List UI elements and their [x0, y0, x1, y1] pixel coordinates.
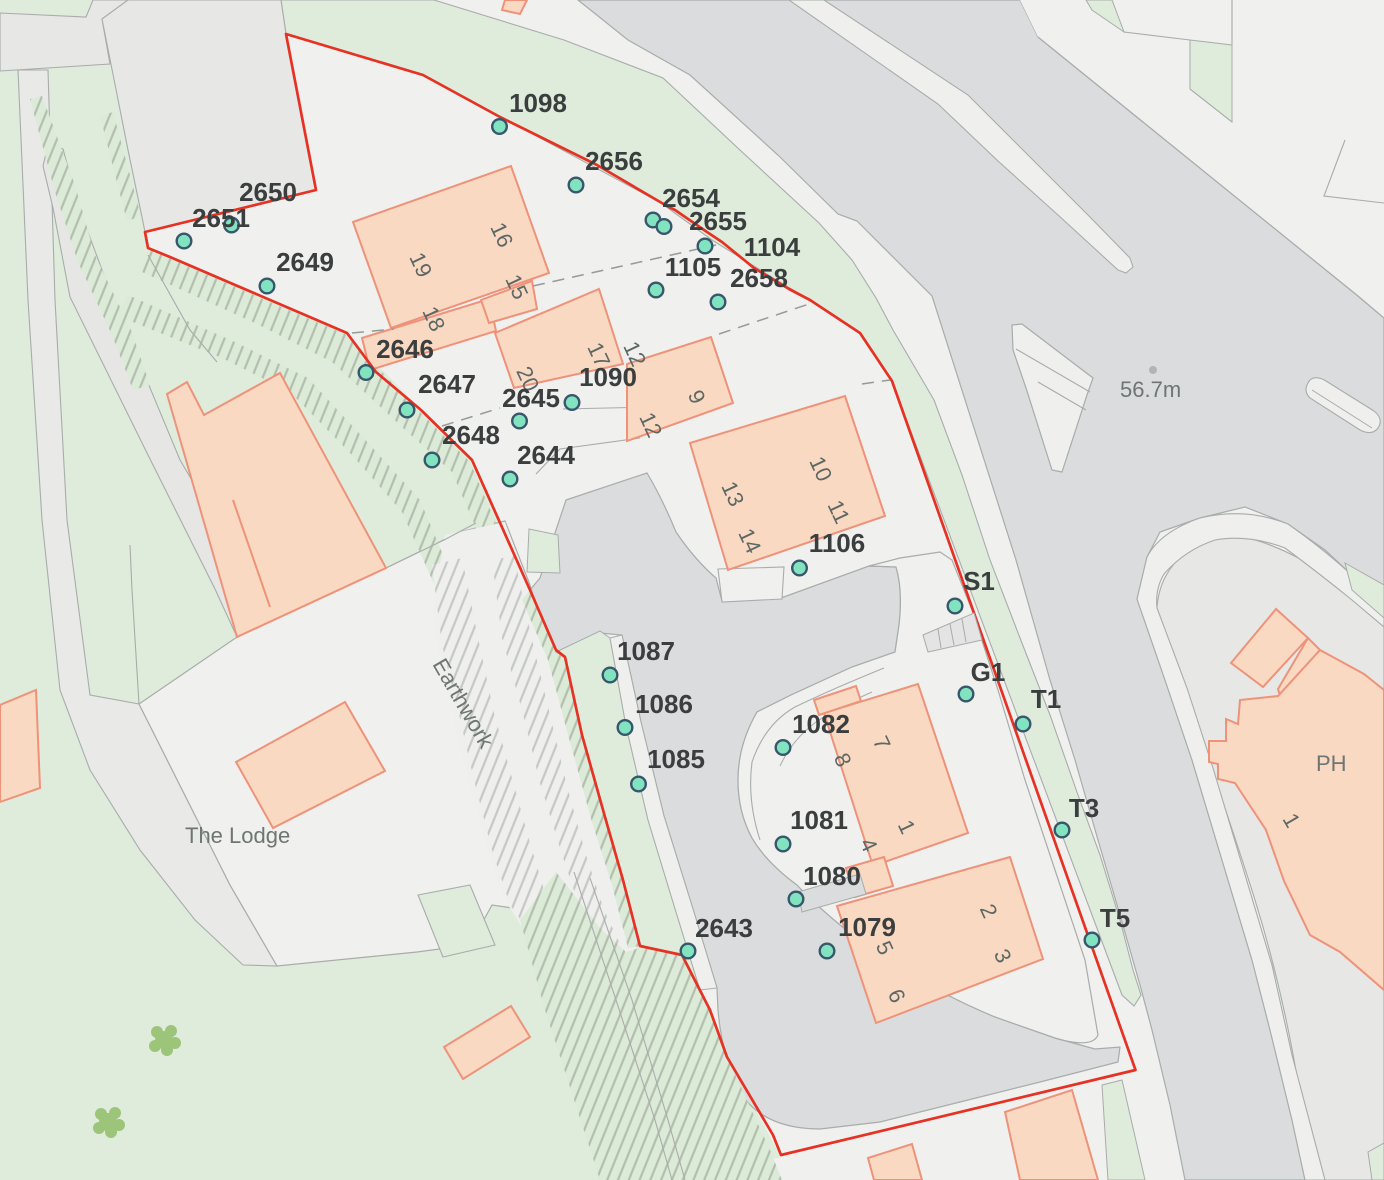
svg-text:2655: 2655: [689, 206, 747, 236]
svg-text:2648: 2648: [442, 420, 500, 450]
svg-text:2647: 2647: [418, 369, 476, 399]
svg-text:1106: 1106: [809, 528, 865, 558]
svg-text:1082: 1082: [792, 709, 850, 739]
svg-text:1098: 1098: [509, 88, 567, 118]
svg-text:2656: 2656: [585, 146, 643, 176]
svg-text:1104: 1104: [744, 232, 801, 262]
svg-text:1085: 1085: [647, 744, 705, 774]
svg-text:1086: 1086: [635, 689, 693, 719]
svg-text:The Lodge: The Lodge: [185, 823, 290, 848]
svg-text:2644: 2644: [517, 440, 575, 470]
svg-text:T3: T3: [1069, 793, 1099, 823]
svg-text:G1: G1: [971, 657, 1006, 687]
svg-text:56.7m: 56.7m: [1120, 377, 1181, 402]
svg-text:T5: T5: [1100, 903, 1130, 933]
svg-text:PH: PH: [1316, 751, 1347, 776]
svg-text:2645: 2645: [502, 383, 560, 413]
svg-text:1090: 1090: [579, 362, 637, 392]
svg-text:1081: 1081: [790, 805, 848, 835]
svg-text:2658: 2658: [730, 263, 788, 293]
svg-text:2643: 2643: [695, 913, 753, 943]
svg-text:2646: 2646: [376, 334, 434, 364]
svg-text:1087: 1087: [617, 636, 675, 666]
svg-text:S1: S1: [963, 566, 995, 596]
svg-text:2649: 2649: [276, 247, 334, 277]
svg-text:2651: 2651: [192, 203, 250, 233]
svg-text:1079: 1079: [838, 912, 896, 942]
svg-text:T1: T1: [1031, 684, 1061, 714]
svg-text:1105: 1105: [665, 252, 721, 282]
svg-text:1080: 1080: [803, 861, 861, 891]
